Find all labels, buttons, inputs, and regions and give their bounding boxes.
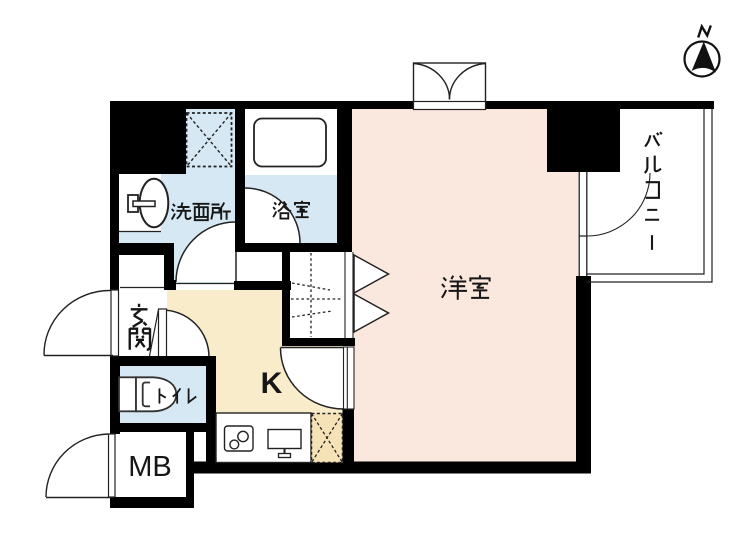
svg-text:K: K: [261, 367, 283, 400]
svg-text:MB: MB: [128, 451, 172, 483]
